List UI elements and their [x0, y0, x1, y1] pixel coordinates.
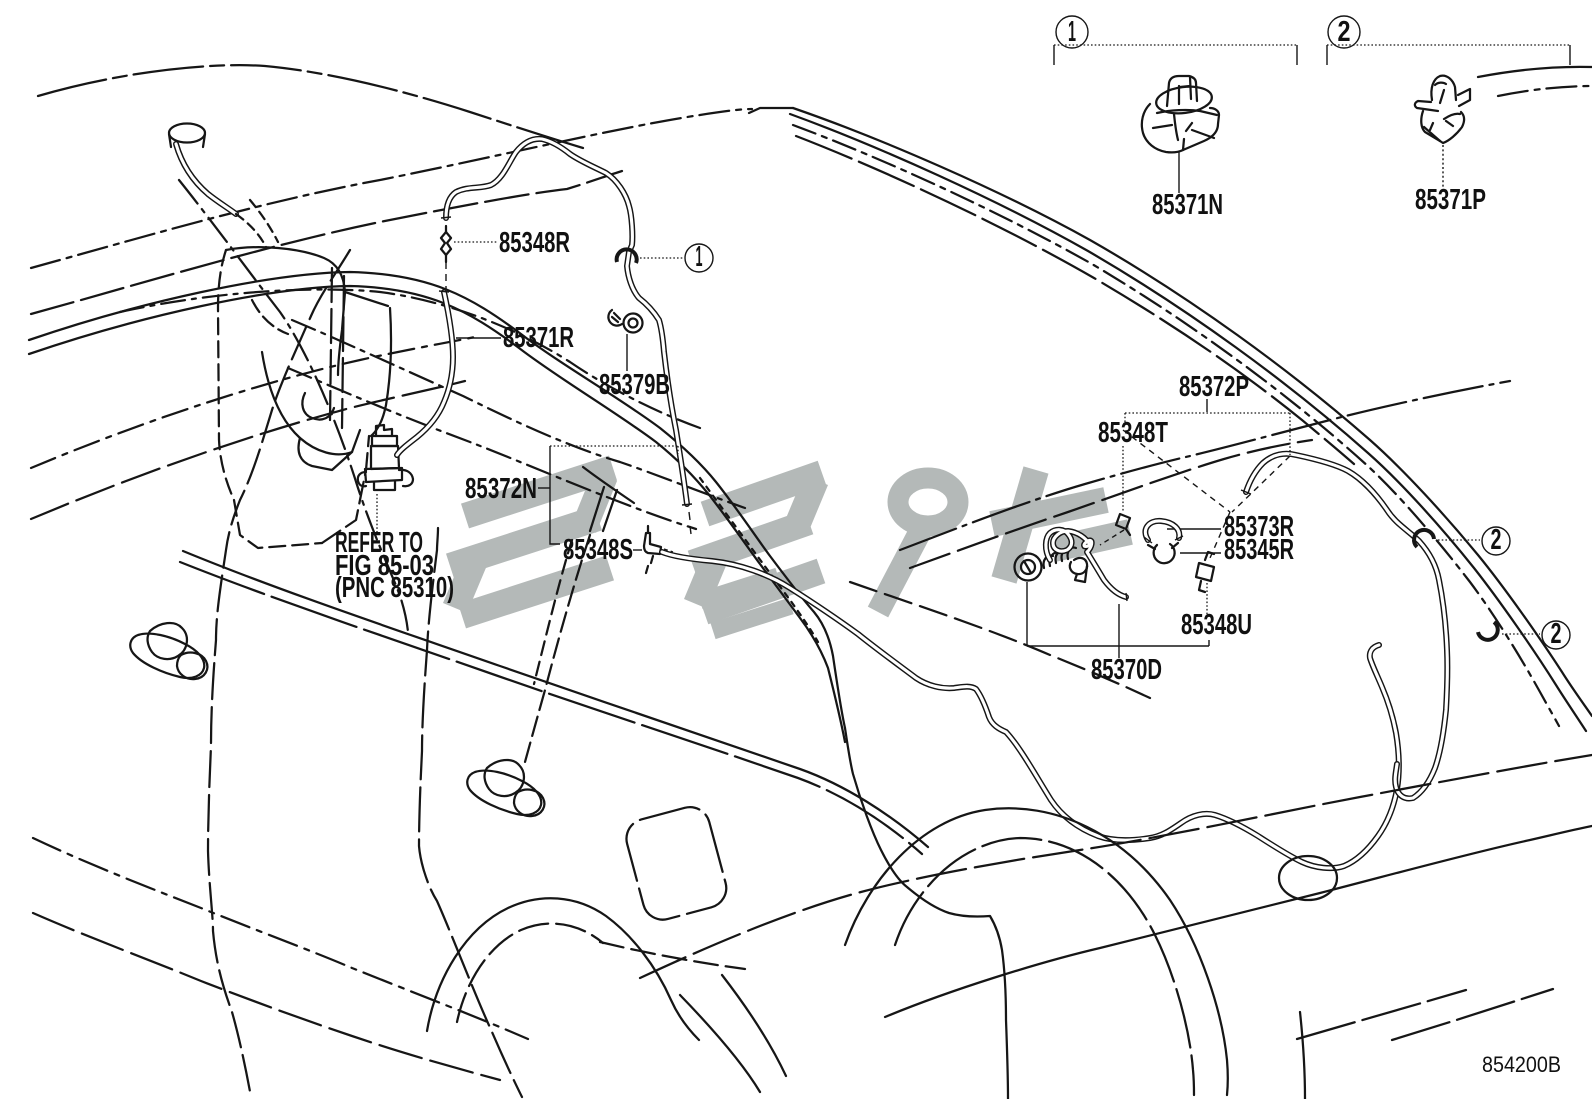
svg-text:85348R: 85348R [499, 227, 570, 259]
svg-text:85371R: 85371R [503, 322, 574, 354]
svg-text:85371P: 85371P [1415, 184, 1486, 216]
svg-text:(PNC 85310): (PNC 85310) [335, 572, 454, 604]
svg-text:85379B: 85379B [599, 369, 670, 401]
svg-text:854200B: 854200B [1482, 1052, 1561, 1077]
svg-text:2: 2 [1551, 618, 1562, 650]
svg-text:85372N: 85372N [465, 473, 537, 505]
svg-text:85348U: 85348U [1181, 609, 1252, 641]
svg-text:1: 1 [696, 241, 703, 273]
svg-text:2: 2 [1491, 524, 1502, 556]
svg-text:85348S: 85348S [563, 534, 633, 566]
svg-text:85348T: 85348T [1098, 417, 1168, 449]
svg-text:85372P: 85372P [1179, 371, 1249, 403]
svg-text:1: 1 [1068, 16, 1076, 48]
svg-text:85370D: 85370D [1091, 654, 1162, 686]
svg-text:2: 2 [1338, 16, 1351, 48]
svg-text:85371N: 85371N [1152, 189, 1223, 221]
svg-text:85345R: 85345R [1224, 534, 1294, 566]
